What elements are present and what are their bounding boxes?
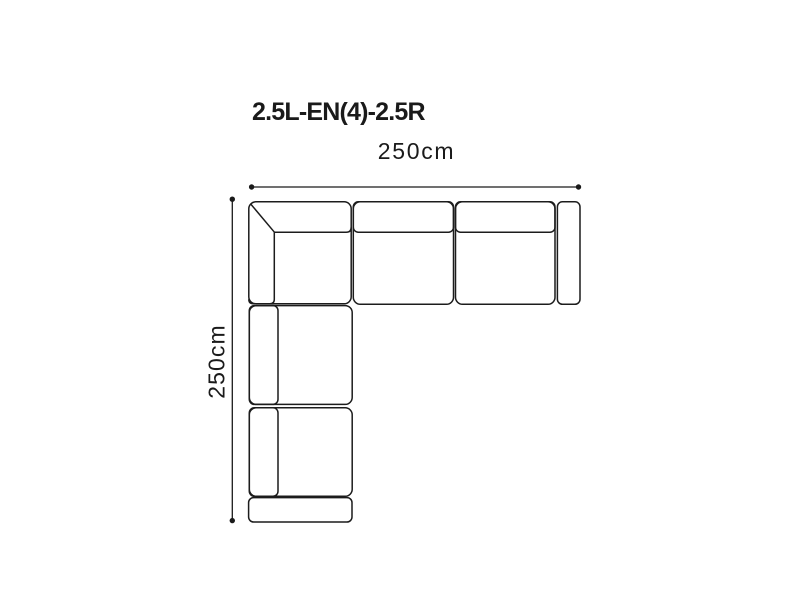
svg-text:250cm: 250cm xyxy=(378,138,456,164)
svg-text:250cm: 250cm xyxy=(204,324,230,399)
svg-text:2.5L-EN(4)-2.5R: 2.5L-EN(4)-2.5R xyxy=(252,98,426,126)
